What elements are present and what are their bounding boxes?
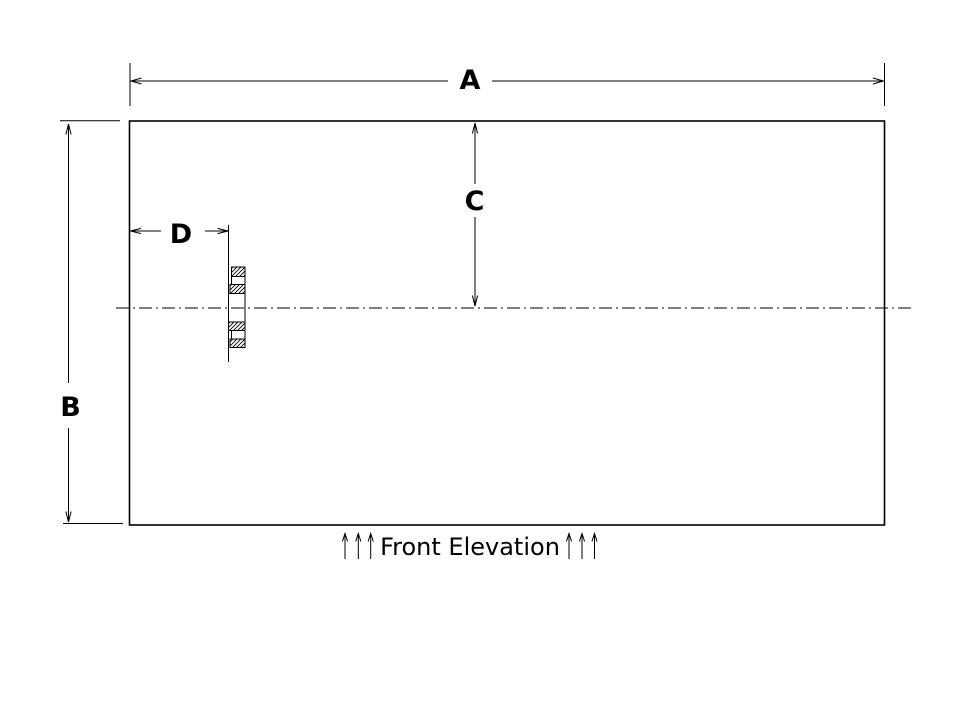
hatch-band <box>229 322 246 331</box>
dimension-label-b: B <box>60 392 81 423</box>
up-arrow-icon <box>592 534 597 560</box>
hatch-band <box>232 267 246 277</box>
up-arrow-icon <box>566 534 571 560</box>
view-title: Front Elevation <box>380 533 560 561</box>
up-arrow-icon <box>368 534 373 560</box>
dimension-b <box>60 121 123 524</box>
up-arrow-icon <box>342 534 347 560</box>
hatch-band <box>230 285 245 294</box>
up-arrow-icon <box>356 534 361 560</box>
hatch-band <box>230 339 245 348</box>
dimension-label-a: A <box>460 65 481 96</box>
bore-band <box>232 331 246 340</box>
caption-arrows-left <box>342 534 373 560</box>
dimension-a <box>130 63 885 106</box>
dimension-label-c: C <box>465 186 485 217</box>
caption-arrows-right <box>566 534 597 560</box>
bore-band <box>232 277 246 285</box>
up-arrow-icon <box>579 534 584 560</box>
dimension-label-d: D <box>170 219 192 250</box>
fitting-cross-section <box>229 267 246 348</box>
front-elevation-drawing: A B C D <box>0 0 960 720</box>
elevation-drawing-slide: A B C D <box>0 0 960 720</box>
